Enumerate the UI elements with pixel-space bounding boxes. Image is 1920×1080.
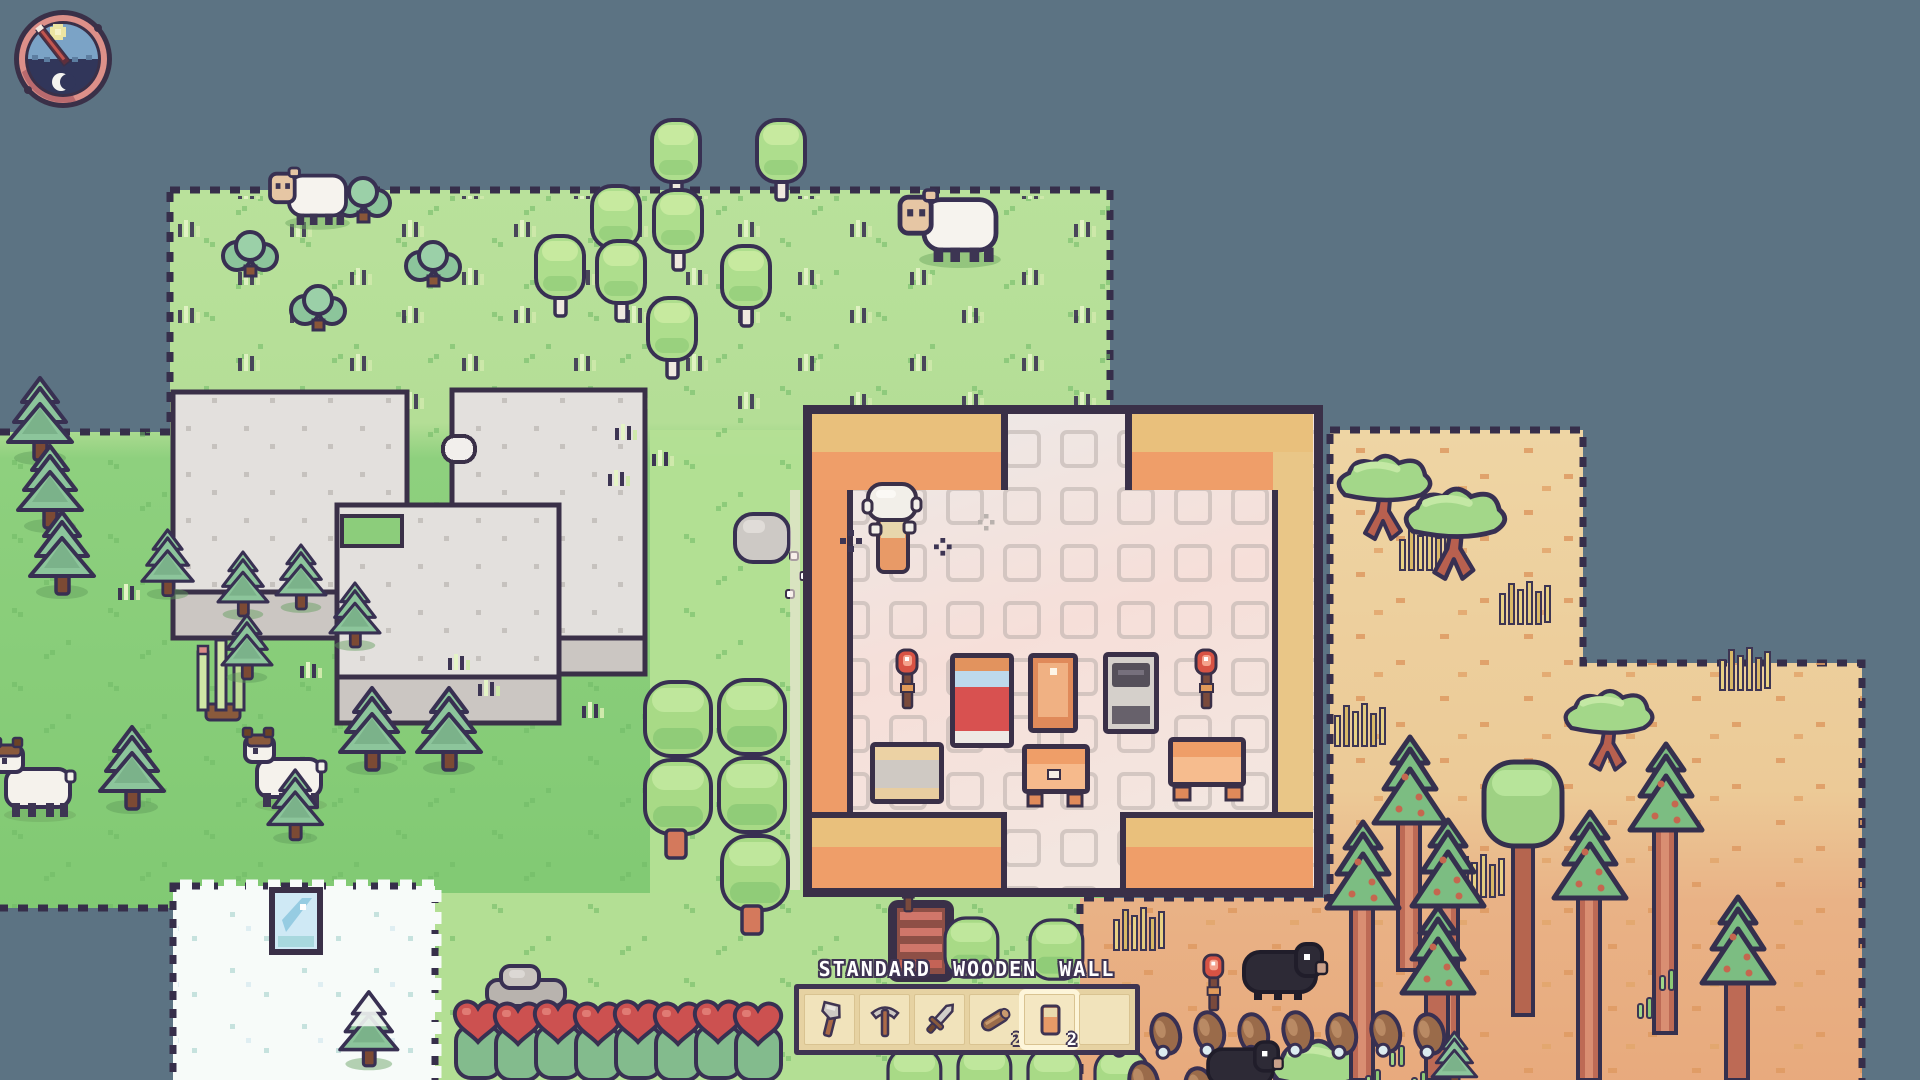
berry-bush[interactable] [735,1004,781,1080]
item-count: 2 [1012,1032,1022,1049]
ruin-grass-hole [342,516,402,546]
wooden-wall-icon [1030,1000,1070,1040]
sword-icon [920,1000,960,1040]
oven[interactable] [1103,652,1159,734]
house-wall-bottom-right[interactable] [1120,812,1313,888]
game-world-viewport[interactable] [0,0,1920,1080]
hotbar-slot-pickaxe[interactable] [859,994,910,1045]
wardrobe[interactable] [1028,653,1078,733]
ruin-arch-hole [443,436,475,462]
hotbar-slot-wooden-wall-selected[interactable]: 2 [1024,994,1075,1045]
game-screen: STANDARD WOODEN WALL [0,0,1920,1080]
house-wall-top-right[interactable] [1125,414,1313,490]
axe-icon [810,1000,850,1040]
clock-tick [24,86,32,94]
table[interactable] [870,742,944,804]
clock-tick [94,24,102,32]
selected-item-tooltip: STANDARD WOODEN WALL [819,957,1116,981]
round-tree[interactable] [719,758,785,832]
hotbar-slot-sword[interactable] [914,994,965,1045]
tree-trunk [742,906,762,934]
hotbar: STANDARD WOODEN WALL [794,984,1140,1055]
round-tree[interactable] [719,680,785,754]
player-head [863,484,921,520]
player-arm [870,524,881,535]
hotbar-panel: 2 2 [794,984,1140,1055]
item-count: 2 [1067,1032,1077,1049]
boulder[interactable] [735,514,789,562]
pickaxe-icon [865,1000,905,1040]
dark-boar[interactable] [1208,1042,1283,1080]
hotbar-slot-wood-log[interactable]: 2 [969,994,1020,1045]
bed[interactable] [950,653,1014,748]
hotbar-slot-axe[interactable] [804,994,855,1045]
day-night-clock[interactable] [10,6,116,112]
wood-log-icon [975,1000,1015,1040]
ice-block[interactable] [272,890,320,952]
round-tree[interactable] [645,760,711,834]
round-tree[interactable] [722,836,788,910]
house-wall-top-left[interactable] [812,414,1008,490]
house-outer-highlight [790,490,800,890]
player-arm [904,522,915,533]
round-tree[interactable] [645,682,711,756]
wooden-house[interactable] [790,405,1323,897]
tree-trunk [666,830,686,858]
crescent-moon-icon [52,73,76,91]
house-wall-bottom-left[interactable] [812,812,1007,888]
hotbar-slot-empty[interactable] [1079,994,1130,1045]
